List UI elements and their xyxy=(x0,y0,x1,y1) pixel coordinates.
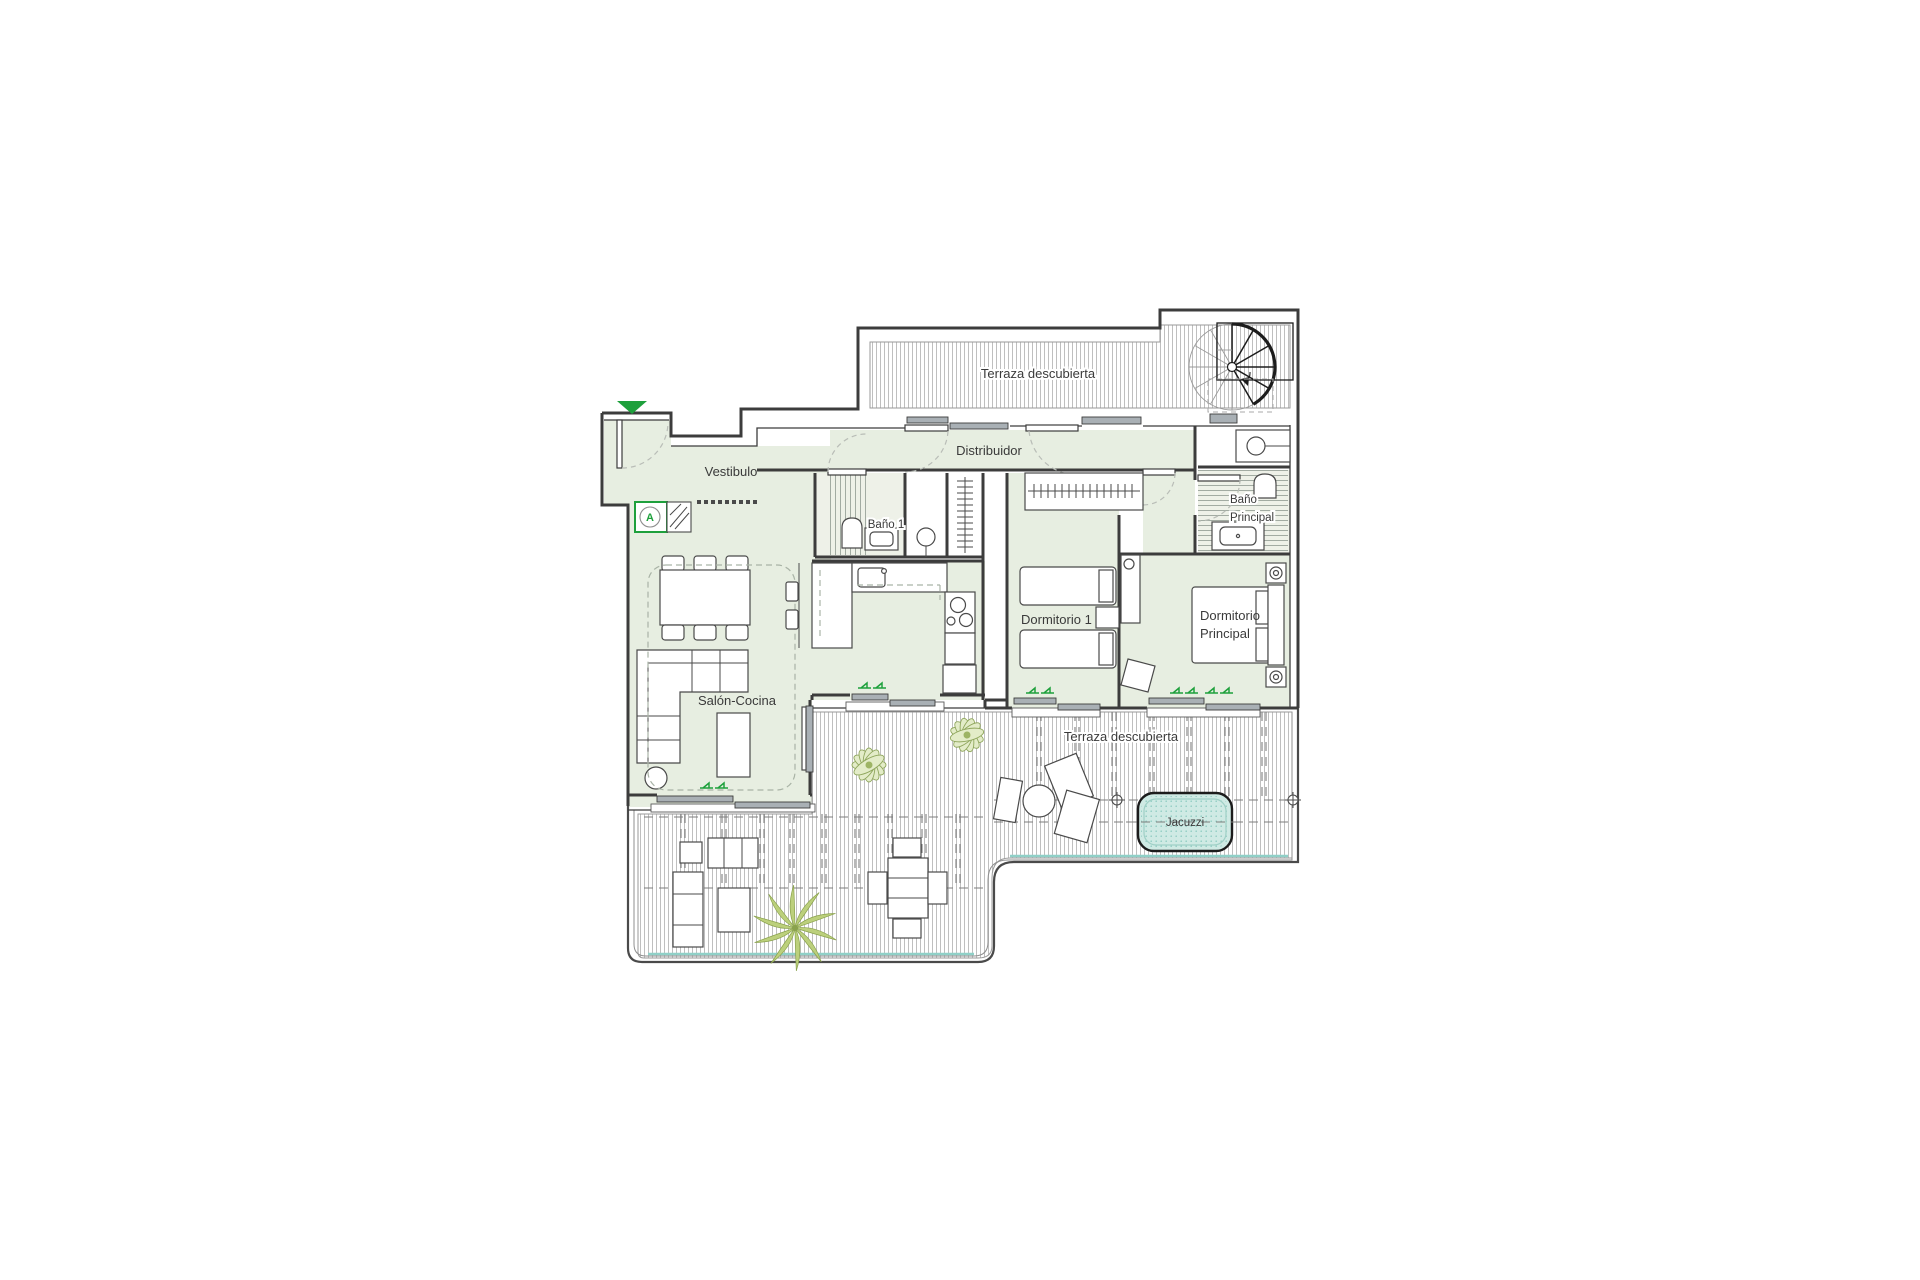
window-dormitorio-principal-2 xyxy=(1206,704,1260,710)
nightstand xyxy=(1096,607,1119,628)
window-cocina-1 xyxy=(852,694,888,700)
sun-lounger xyxy=(673,872,703,947)
window-stair-landing xyxy=(1210,414,1237,423)
room-lobby-principal xyxy=(1143,470,1195,554)
window-salon-1 xyxy=(657,796,733,802)
outdoor-table xyxy=(708,838,758,868)
entry-unit-letter: A xyxy=(646,512,654,524)
vestibule-dotted-row xyxy=(697,500,757,504)
window-dormitorio1-1 xyxy=(1014,698,1056,704)
washer xyxy=(917,528,935,546)
floor-plan-drawing: A xyxy=(0,0,1920,1280)
outdoor-dining-table xyxy=(888,858,928,918)
dining-chair xyxy=(662,625,684,640)
coffee-table xyxy=(717,713,750,777)
entry-door-leaf xyxy=(617,420,622,468)
outdoor-chair xyxy=(928,872,947,904)
label-vestibulo: Vestibulo xyxy=(705,464,758,479)
pillow xyxy=(1099,570,1113,602)
dining-chair xyxy=(726,625,748,640)
entry-unit-a: A xyxy=(635,502,691,532)
kitchen-sink xyxy=(858,568,885,587)
basin xyxy=(1247,437,1265,455)
label-salon-cocina: Salón-Cocina xyxy=(698,693,777,708)
window-salon-2 xyxy=(735,802,810,808)
window-cocina-2 xyxy=(890,700,935,706)
kitchen-island xyxy=(812,563,852,648)
door-principal-leaf xyxy=(1143,469,1175,475)
dining-chair xyxy=(694,625,716,640)
dining-chair xyxy=(726,556,748,571)
tv-sideboard xyxy=(802,707,806,770)
stool xyxy=(786,582,798,601)
label-terraza-superior: Terraza descubierta xyxy=(981,366,1096,381)
floor-plan-page: A xyxy=(0,0,1920,1280)
window-distribuidor-1 xyxy=(907,417,948,423)
room-vestibulo-entry xyxy=(604,420,671,505)
door-vestibulo-leaf xyxy=(828,469,866,475)
door-distribuidor-leaf xyxy=(905,425,948,431)
decor-item xyxy=(1124,559,1134,569)
outdoor-chair xyxy=(868,872,887,904)
label-bano-principal-1: Baño xyxy=(1230,494,1257,506)
window-salon-side xyxy=(806,706,813,772)
burner xyxy=(951,598,966,613)
side-table xyxy=(680,842,702,863)
headboard xyxy=(1268,585,1284,665)
door-terraza-leaf xyxy=(1026,425,1078,431)
label-distribuidor: Distribuidor xyxy=(956,443,1022,458)
label-dormitorio1: Dormitorio 1 xyxy=(1021,612,1092,627)
label-bano1: Baño 1 xyxy=(868,519,904,531)
outdoor-chair xyxy=(893,919,921,938)
dining-chair xyxy=(694,556,716,571)
label-jacuzzi: Jacuzzi xyxy=(1166,817,1204,829)
basin xyxy=(870,532,893,546)
window-distribuidor-2 xyxy=(950,423,1008,429)
dining-table xyxy=(660,570,750,625)
kitchen-tall-unit xyxy=(945,633,975,664)
pillow xyxy=(1256,628,1268,661)
stool xyxy=(786,610,798,629)
burner xyxy=(960,614,973,627)
outdoor-chair xyxy=(893,838,921,857)
window-dormitorio1-2 xyxy=(1058,704,1100,710)
label-dormitorio-principal-1: Dormitorio xyxy=(1200,608,1260,623)
dining-chair xyxy=(662,556,684,571)
fridge xyxy=(943,665,976,693)
window-terraza-superior xyxy=(1082,417,1141,424)
burner xyxy=(947,617,955,625)
pillow xyxy=(1099,633,1113,665)
toilet xyxy=(1254,474,1276,498)
toilet xyxy=(842,518,862,548)
label-dormitorio-principal-2: Principal xyxy=(1200,626,1250,641)
round-table xyxy=(1023,785,1055,817)
faucet xyxy=(882,569,887,574)
door-bano-principal-leaf xyxy=(1198,475,1240,481)
window-dormitorio-principal-1 xyxy=(1149,698,1204,704)
floor-lamp xyxy=(645,767,667,789)
sun-lounger xyxy=(718,888,750,932)
label-terraza-inferior: Terraza descubierta xyxy=(1064,729,1179,744)
label-bano-principal-2: Principal xyxy=(1230,512,1274,524)
